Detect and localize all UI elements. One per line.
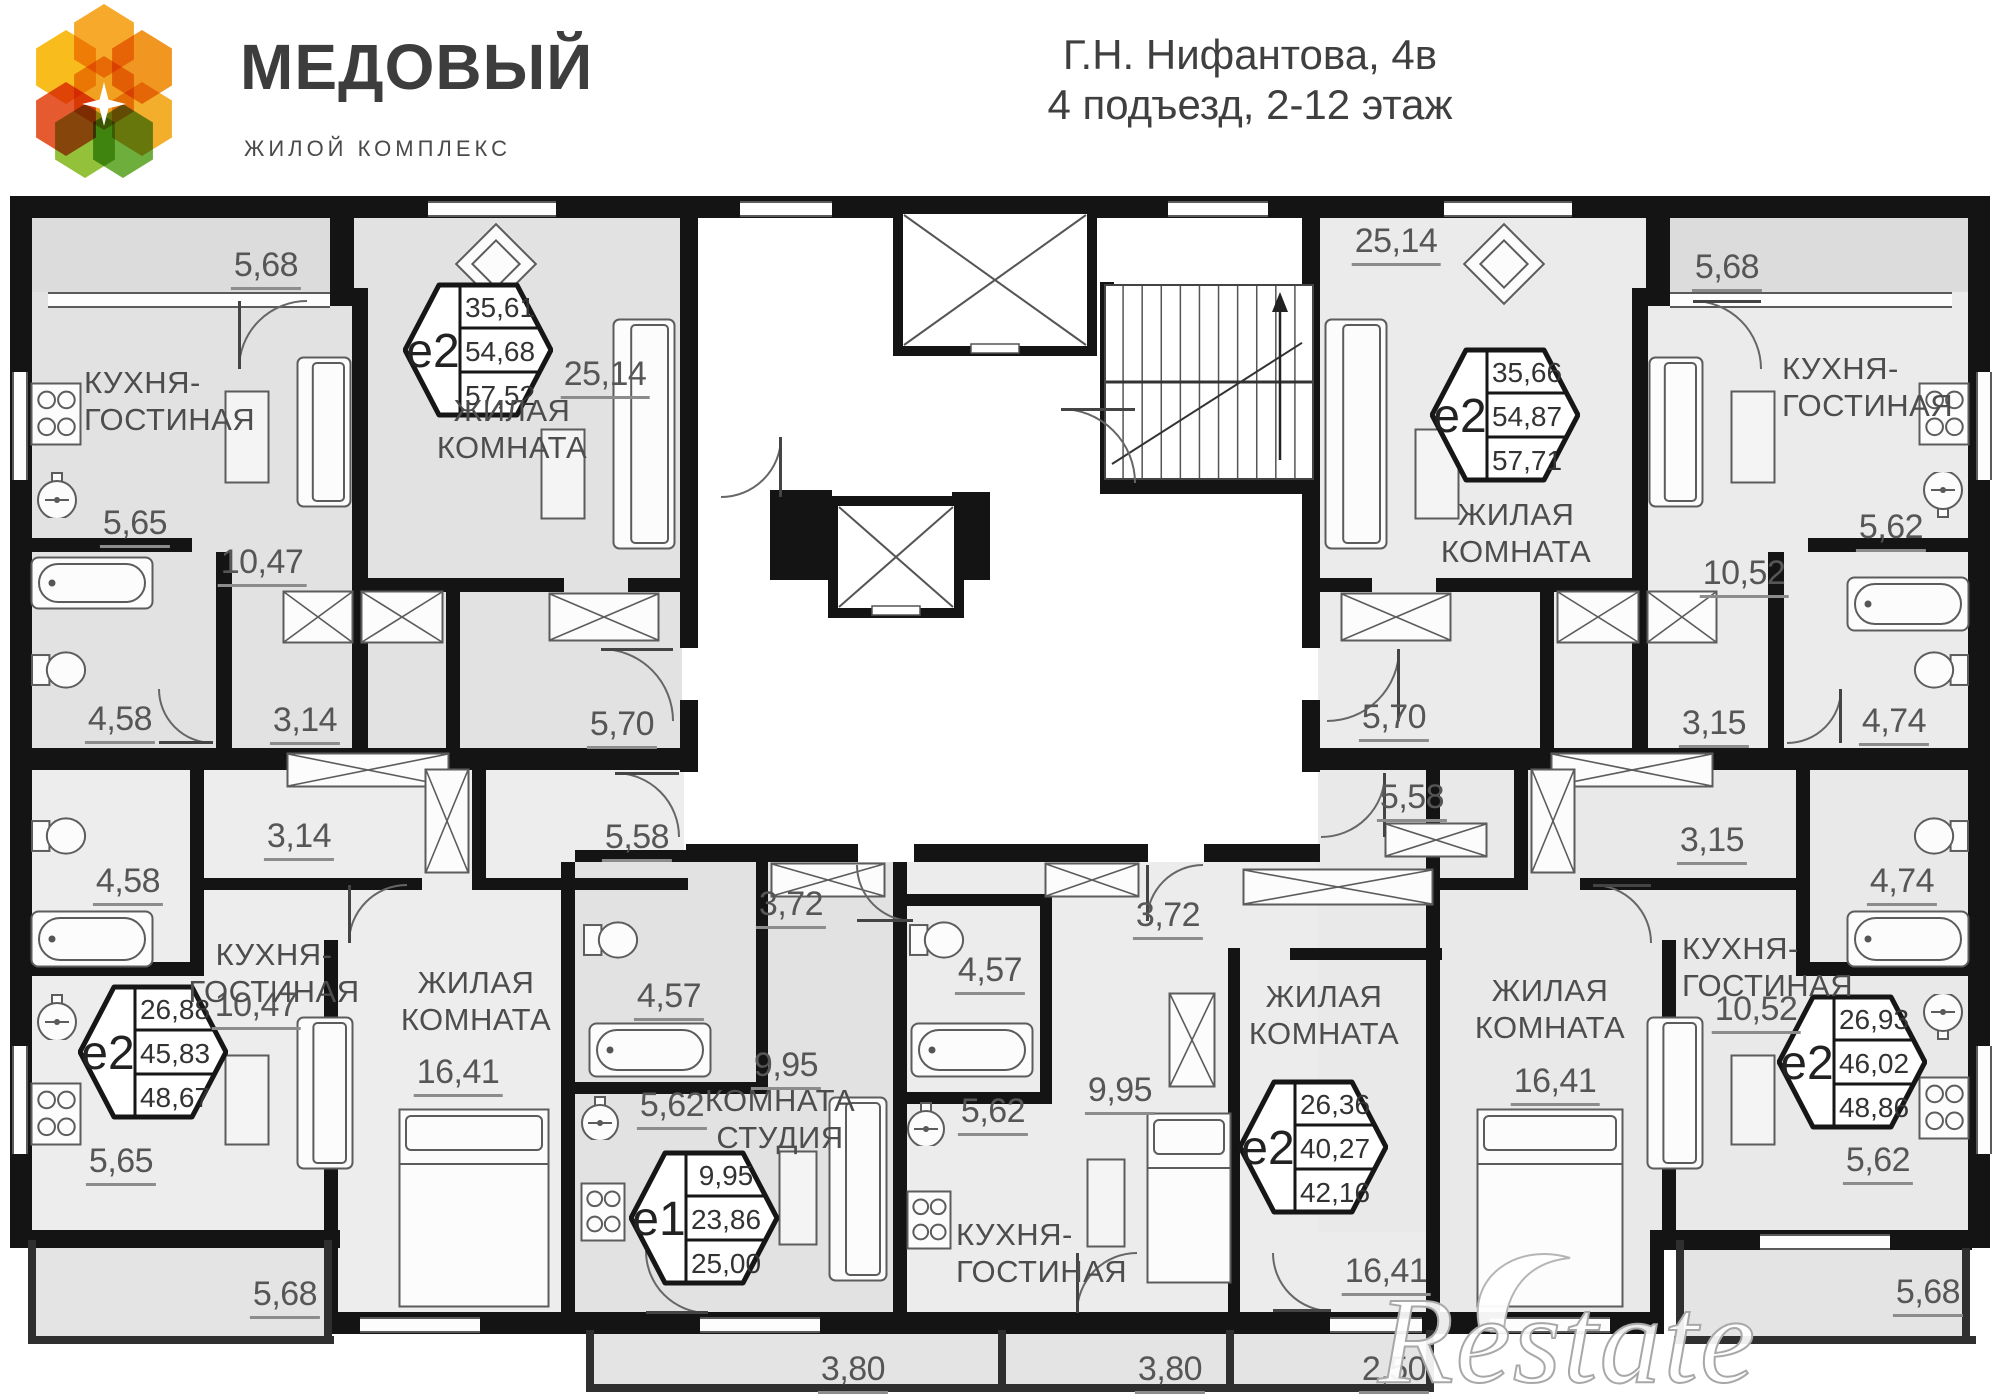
svg-text:e1: e1 xyxy=(632,1193,685,1246)
area-label: 5,70 xyxy=(587,705,657,749)
sofa-icon xyxy=(296,356,352,508)
xbox-icon xyxy=(424,768,470,874)
window-icon xyxy=(360,1317,480,1333)
area-label: 3,14 xyxy=(270,701,340,745)
room-name-label: КУХНЯ-ГОСТИНАЯ xyxy=(188,936,359,1010)
area-label: 3,80 xyxy=(1135,1350,1205,1394)
area-label: 5,58 xyxy=(602,818,672,862)
tub-icon xyxy=(30,910,154,968)
room-name-label: ЖИЛАЯКОМНАТА xyxy=(401,964,551,1038)
wall xyxy=(770,490,832,580)
area-label: 5,62 xyxy=(958,1092,1028,1136)
area-label: 5,62 xyxy=(1856,508,1926,552)
door-icon xyxy=(1786,688,1842,744)
wall xyxy=(561,862,575,1312)
apartment-badge: e19,9523,8625,00 xyxy=(629,1145,779,1291)
room-name-label: ЖИЛАЯКОМНАТА xyxy=(1475,972,1625,1046)
svg-text:e2: e2 xyxy=(406,325,459,378)
tub-icon xyxy=(1846,576,1970,632)
area-label: 3,80 xyxy=(818,1350,888,1394)
xbox-icon xyxy=(548,592,660,642)
xbox-icon xyxy=(1044,862,1140,898)
window-icon xyxy=(428,201,556,217)
wall xyxy=(472,764,486,890)
area-label: 25,14 xyxy=(1352,222,1441,266)
door-icon xyxy=(1060,408,1136,484)
room-area xyxy=(594,1332,998,1386)
svg-text:54,87: 54,87 xyxy=(1492,401,1562,432)
svg-text:46,02: 46,02 xyxy=(1839,1048,1909,1079)
area-label: 3,14 xyxy=(264,817,334,861)
svg-text:45,83: 45,83 xyxy=(140,1038,210,1069)
wall xyxy=(628,578,682,592)
window-icon xyxy=(1444,201,1572,217)
area-label: 3,15 xyxy=(1677,821,1747,865)
balcony-rail xyxy=(1962,1248,1970,1344)
balcony-rail xyxy=(28,1336,334,1344)
watermark: Restate xyxy=(1378,1270,1757,1395)
window-icon xyxy=(700,1317,820,1333)
door-icon xyxy=(856,864,914,922)
xbox-icon xyxy=(282,590,354,644)
room-name-label: ЖИЛАЯКОМНАТА xyxy=(437,392,587,466)
area-label: 3,72 xyxy=(1133,896,1203,940)
room-name-label: ЖИЛАЯКОМНАТА xyxy=(1441,496,1591,570)
wall xyxy=(1204,844,1320,862)
area-label: 5,68 xyxy=(231,246,301,290)
balcony-rail xyxy=(998,1330,1006,1392)
area-label: 5,65 xyxy=(86,1142,156,1186)
door-icon xyxy=(348,884,408,944)
wall xyxy=(1514,764,1528,890)
sofa-icon xyxy=(1324,318,1388,550)
area-label: 5,65 xyxy=(100,504,170,548)
xbox-icon xyxy=(1384,822,1488,858)
svg-text:26,93: 26,93 xyxy=(1839,1004,1909,1035)
svg-text:e2: e2 xyxy=(81,1027,134,1080)
stove-icon xyxy=(30,382,82,446)
svg-text:26,36: 26,36 xyxy=(1300,1089,1370,1120)
room-name-label: КУХНЯ-ГОСТИНАЯ xyxy=(84,364,255,438)
tub-icon xyxy=(910,1022,1034,1078)
svg-text:35,66: 35,66 xyxy=(1492,357,1562,388)
elevator-icon xyxy=(828,496,964,618)
wall xyxy=(1646,196,1670,306)
balcony-rail xyxy=(1226,1330,1234,1392)
xbox-icon xyxy=(360,590,444,644)
area-label: 16,41 xyxy=(414,1053,503,1097)
screenshot-root: МЕДОВЫЙ ЖИЛОЙ КОМПЛЕКС Г.Н. Нифантова, 4… xyxy=(0,0,2000,1395)
area-label: 10,52 xyxy=(1700,554,1789,598)
wall xyxy=(914,844,1148,862)
elevator-icon xyxy=(893,204,1097,356)
window-icon xyxy=(1976,1046,1992,1154)
area-label: 5,62 xyxy=(1843,1141,1913,1185)
tub-icon xyxy=(30,556,154,610)
xbox-icon xyxy=(1340,592,1452,642)
sink-icon xyxy=(1920,472,1966,518)
sink-icon xyxy=(578,1096,622,1140)
area-label: 10,47 xyxy=(218,543,307,587)
area-label: 5,58 xyxy=(1377,778,1447,822)
wall xyxy=(1440,878,1512,890)
area-label: 4,57 xyxy=(634,977,704,1021)
wall xyxy=(1290,948,1442,960)
door-icon xyxy=(1592,884,1652,944)
svg-text:e2: e2 xyxy=(1780,1037,1833,1090)
sink-icon xyxy=(904,1102,948,1146)
tub-icon xyxy=(588,1022,712,1078)
wall xyxy=(1540,590,1554,748)
wall xyxy=(446,590,460,748)
area-label: 5,70 xyxy=(1359,698,1429,742)
area-label: 3,72 xyxy=(756,885,826,929)
area-label: 9,95 xyxy=(1085,1071,1155,1115)
door-icon xyxy=(720,436,782,498)
wall xyxy=(10,1230,340,1248)
balcony-rail xyxy=(586,1330,594,1392)
floor-plan: e235,6154,6857,52e235,6654,8757,71e226,8… xyxy=(0,0,2000,1395)
svg-text:25,00: 25,00 xyxy=(691,1248,761,1279)
svg-text:9,95: 9,95 xyxy=(699,1160,754,1191)
window-icon xyxy=(12,372,28,480)
wall xyxy=(893,862,907,1312)
door-icon xyxy=(238,300,308,370)
bed-icon xyxy=(1146,1112,1232,1284)
svg-text:48,67: 48,67 xyxy=(140,1082,210,1113)
window-icon xyxy=(1976,372,1992,480)
wall xyxy=(330,196,354,306)
table-icon xyxy=(1730,390,1776,484)
sofa-icon xyxy=(612,318,676,550)
wc-icon xyxy=(1912,648,1970,692)
xbox-icon xyxy=(1556,590,1640,644)
sofa-icon xyxy=(1648,356,1704,508)
chair-icon xyxy=(1460,220,1548,308)
area-label: 5,68 xyxy=(250,1275,320,1319)
room-name-label: КУХНЯ-ГОСТИНАЯ xyxy=(1682,930,1853,1004)
balcony-rail xyxy=(28,1240,36,1344)
window-icon xyxy=(1168,201,1268,217)
stove-icon xyxy=(580,1182,626,1242)
door-icon xyxy=(1272,1252,1332,1312)
stove-icon xyxy=(30,1082,82,1146)
window-icon xyxy=(1760,1234,1890,1250)
svg-text:e2: e2 xyxy=(1433,390,1486,443)
area-label: 4,57 xyxy=(955,951,1025,995)
bed-icon xyxy=(398,1108,550,1308)
wall xyxy=(472,878,688,890)
window-icon xyxy=(740,201,832,217)
svg-text:40,27: 40,27 xyxy=(1300,1133,1370,1164)
door-icon xyxy=(158,688,214,744)
xbox-icon xyxy=(1646,590,1718,644)
wall xyxy=(1318,578,1372,592)
wall xyxy=(907,894,1042,906)
wall xyxy=(680,196,698,648)
area-label: 3,15 xyxy=(1679,704,1749,748)
wc-icon xyxy=(30,814,88,858)
stove-icon xyxy=(906,1190,952,1250)
room-name-label: КУХНЯ-ГОСТИНАЯ xyxy=(1782,350,1953,424)
sink-icon xyxy=(34,994,80,1040)
area-label: 5,62 xyxy=(637,1086,707,1130)
table-icon xyxy=(1730,1054,1776,1146)
room-name-label: ЖИЛАЯКОМНАТА xyxy=(1249,978,1399,1052)
wall xyxy=(680,700,698,772)
door-icon xyxy=(1692,300,1762,370)
area-label: 5,68 xyxy=(1893,1273,1963,1317)
svg-text:23,86: 23,86 xyxy=(691,1204,761,1235)
room-name-label: КОМНАТАСТУДИЯ xyxy=(705,1082,855,1156)
wc-icon xyxy=(1912,814,1970,858)
svg-text:57,71: 57,71 xyxy=(1492,445,1562,476)
xbox-icon xyxy=(1242,868,1434,906)
svg-text:42,16: 42,16 xyxy=(1300,1177,1370,1208)
wall xyxy=(686,844,858,862)
balcony-rail xyxy=(586,1384,1004,1392)
wc-icon xyxy=(30,648,88,692)
svg-text:48,86: 48,86 xyxy=(1839,1092,1909,1123)
window-icon xyxy=(12,1046,28,1154)
svg-text:54,68: 54,68 xyxy=(465,336,535,367)
xbox-icon xyxy=(1530,768,1576,874)
table-icon xyxy=(224,1054,270,1146)
area-label: 4,74 xyxy=(1859,702,1929,746)
tub-icon xyxy=(1846,910,1970,968)
area-label: 5,68 xyxy=(1692,248,1762,292)
wc-icon xyxy=(582,918,640,962)
area-label: 4,58 xyxy=(93,862,163,906)
sink-icon xyxy=(34,472,80,518)
apartment-badge: e235,6654,8757,71 xyxy=(1430,342,1580,488)
sofa-icon xyxy=(1646,1016,1704,1170)
wall xyxy=(352,288,368,590)
sofa-icon xyxy=(296,1016,354,1170)
wall xyxy=(1040,894,1052,1094)
balcony-rail xyxy=(324,1240,332,1340)
svg-text:35,61: 35,61 xyxy=(465,292,535,323)
apartment-badge: e226,3640,2742,16 xyxy=(1238,1074,1388,1220)
room-name-label: КУХНЯ-ГОСТИНАЯ xyxy=(956,1216,1127,1290)
wall xyxy=(1302,700,1320,772)
area-label: 4,58 xyxy=(85,700,155,744)
table-icon xyxy=(778,1150,818,1246)
area-label: 4,74 xyxy=(1867,862,1937,906)
svg-text:e2: e2 xyxy=(1241,1122,1294,1175)
xbox-icon xyxy=(1168,992,1216,1088)
wall xyxy=(1632,288,1648,590)
area-label: 16,41 xyxy=(1511,1062,1600,1106)
